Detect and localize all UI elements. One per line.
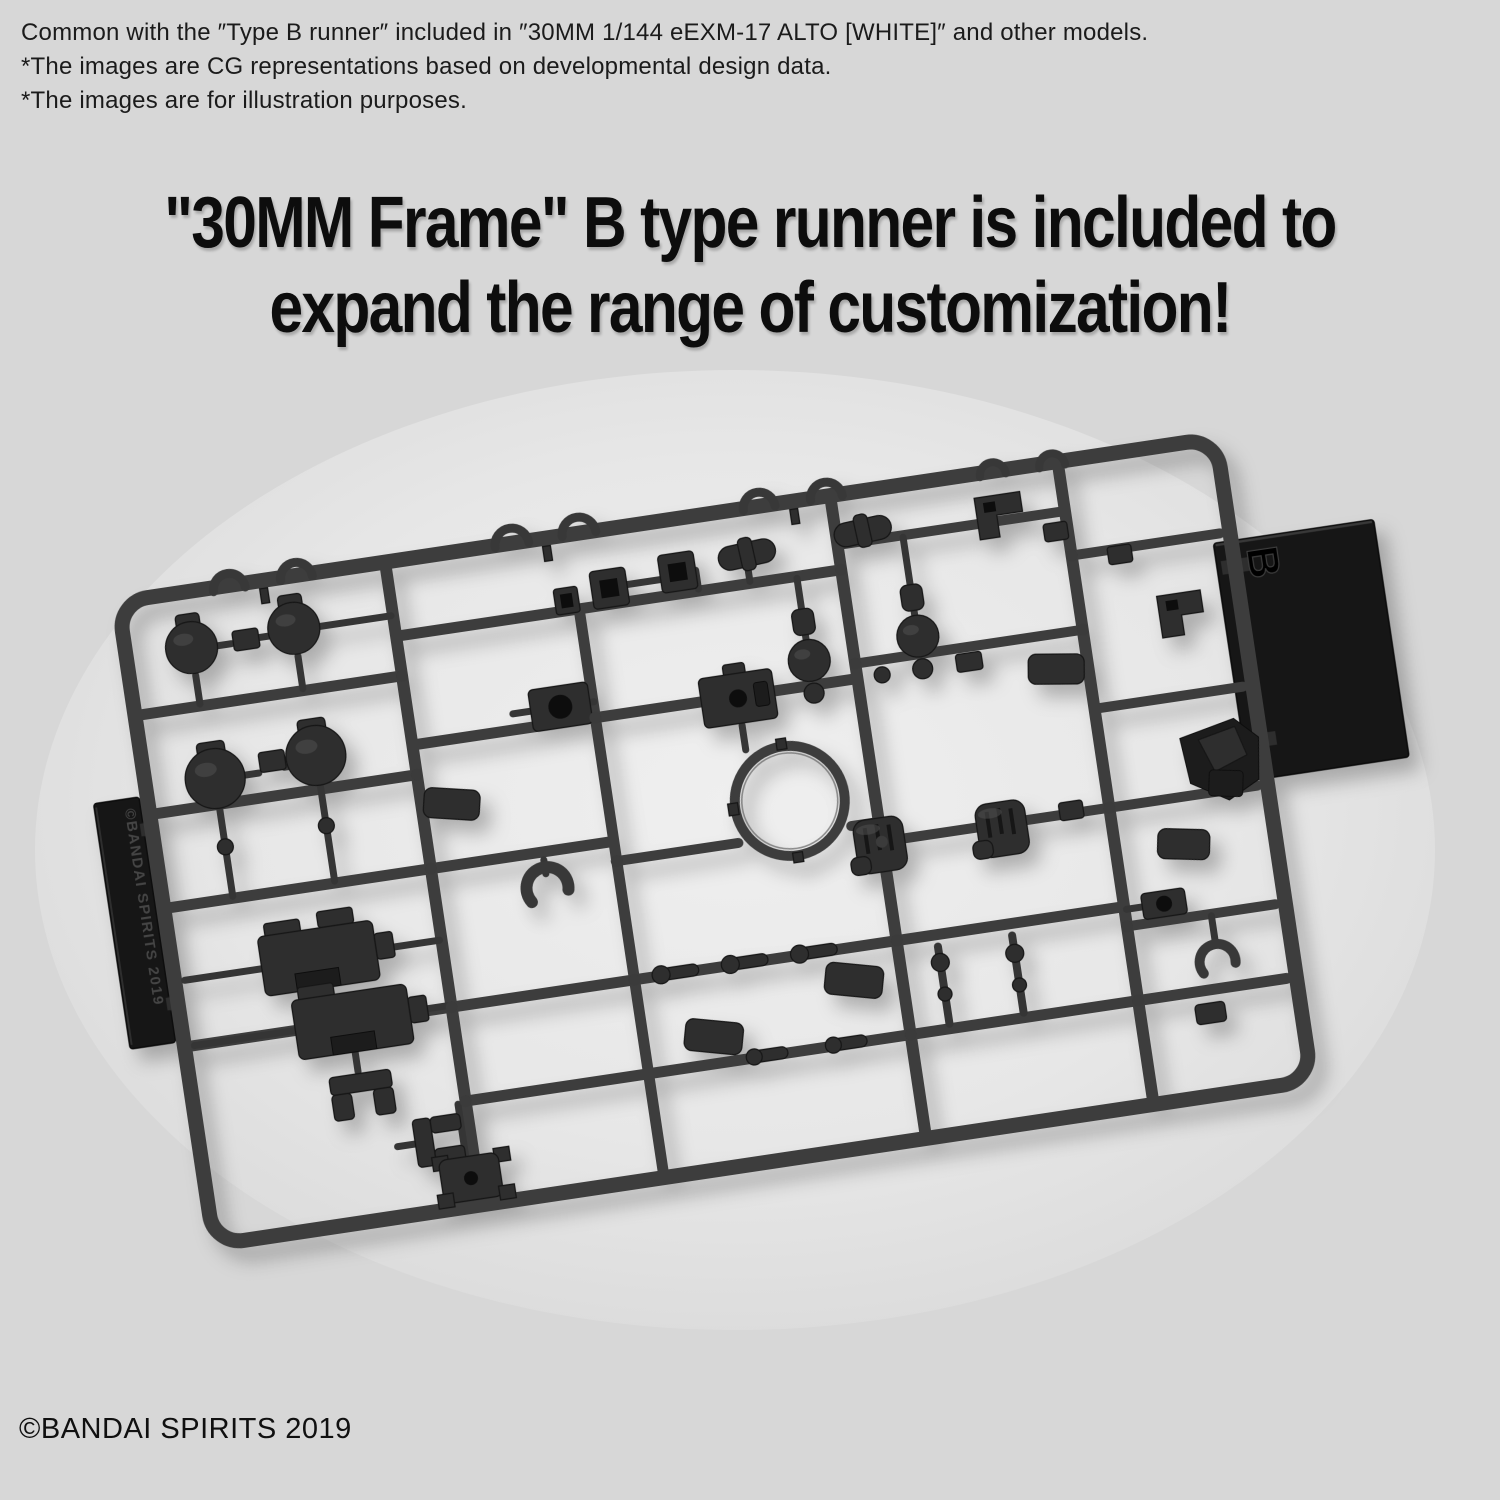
copyright-text: ©BANDAI SPIRITS 2019 <box>19 1412 352 1446</box>
page: { "canvas": { "background": "#d7d7d7", "… <box>0 0 1500 1500</box>
runner-photo: ©BANDAI SPIRITS 2019 B <box>0 0 1500 1500</box>
